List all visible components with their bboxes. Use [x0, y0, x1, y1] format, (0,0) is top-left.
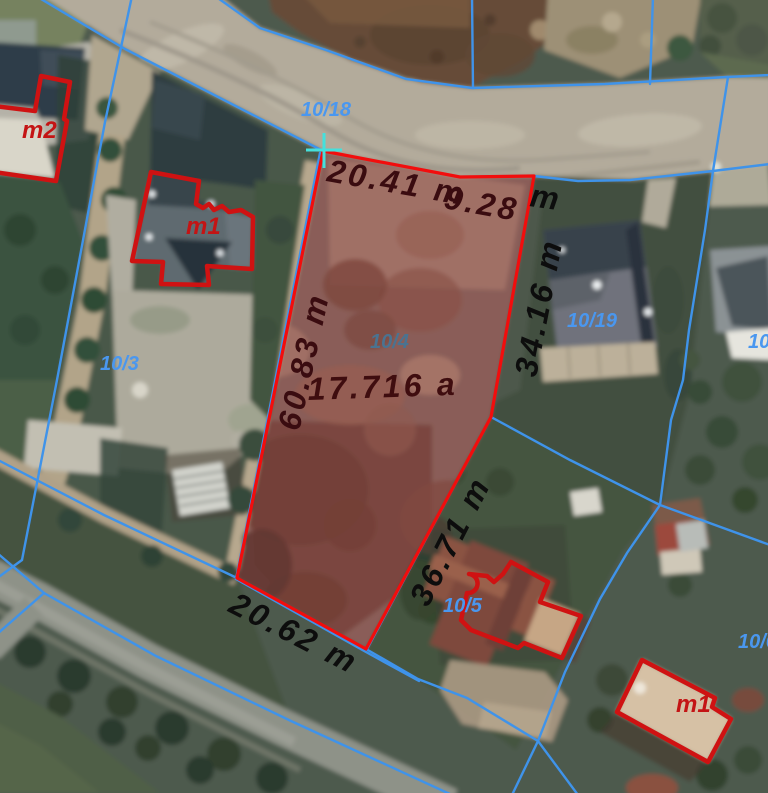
svg-text:10/4: 10/4 — [370, 331, 409, 353]
svg-text:10/3: 10/3 — [100, 353, 139, 375]
svg-text:10/18: 10/18 — [301, 99, 352, 121]
svg-text:10/6: 10/6 — [738, 631, 768, 653]
svg-text:10/1: 10/1 — [748, 331, 768, 353]
svg-text:m: m — [528, 177, 564, 217]
svg-text:10/5: 10/5 — [443, 595, 483, 617]
svg-text:m2: m2 — [22, 117, 57, 144]
svg-text:10/19: 10/19 — [567, 310, 618, 332]
svg-text:m1: m1 — [676, 691, 711, 718]
svg-text:17.716 a: 17.716 a — [307, 366, 458, 407]
svg-text:m1: m1 — [186, 213, 221, 240]
